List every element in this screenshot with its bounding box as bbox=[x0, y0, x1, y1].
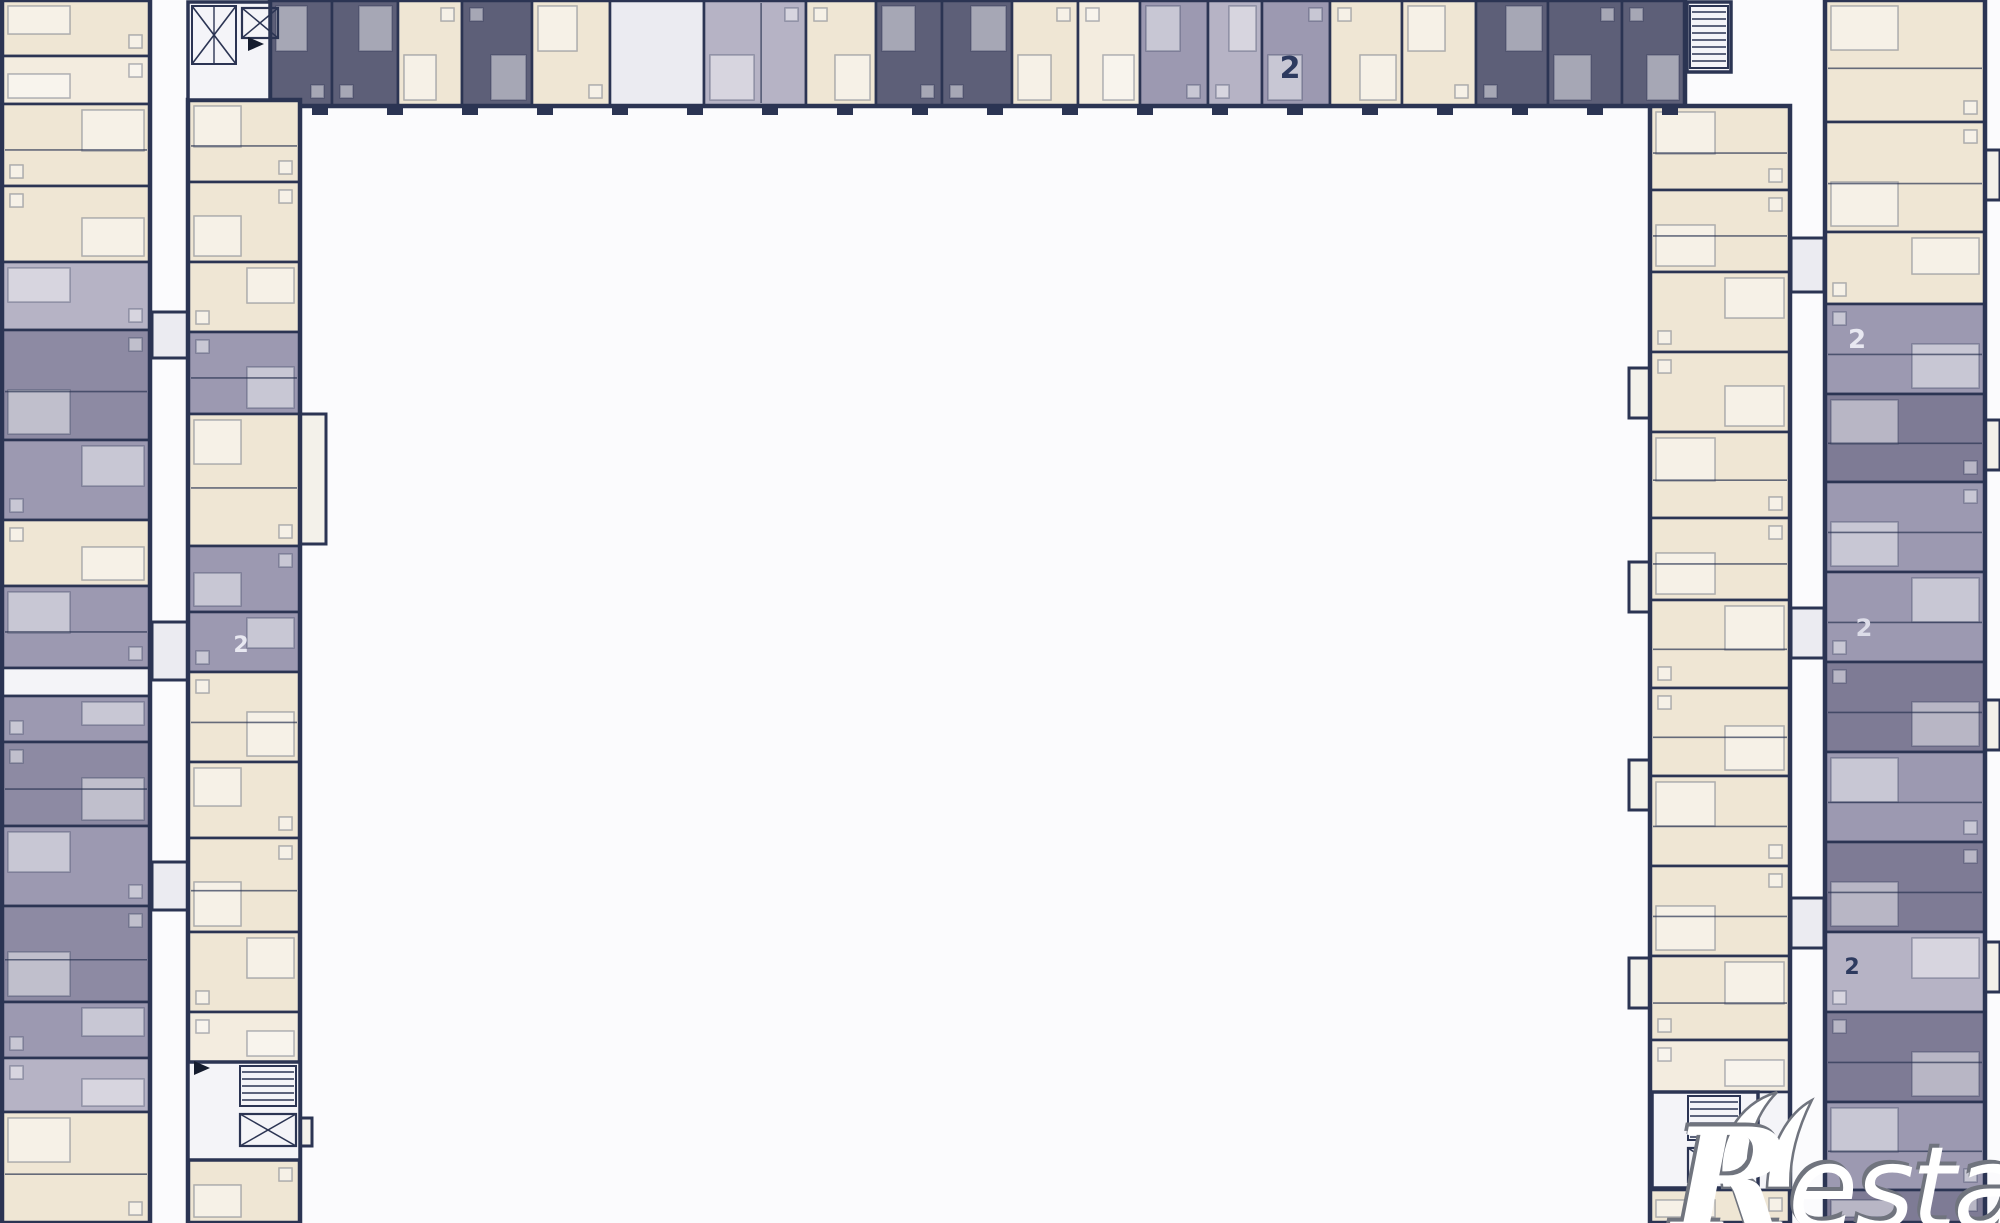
furniture bbox=[1216, 85, 1229, 98]
furniture bbox=[1912, 702, 1979, 746]
furniture bbox=[196, 991, 209, 1004]
furniture bbox=[279, 846, 292, 859]
furniture bbox=[1229, 6, 1256, 51]
furniture bbox=[10, 721, 23, 734]
furniture bbox=[129, 1202, 142, 1215]
furniture bbox=[247, 712, 294, 756]
furniture bbox=[1658, 1019, 1671, 1032]
furniture bbox=[194, 420, 241, 464]
furniture bbox=[1656, 225, 1715, 266]
furniture bbox=[196, 651, 209, 664]
furniture bbox=[82, 446, 144, 486]
furniture bbox=[814, 8, 827, 21]
furniture bbox=[1725, 1060, 1784, 1086]
furniture bbox=[247, 1031, 294, 1056]
furniture bbox=[10, 165, 23, 178]
furniture bbox=[835, 55, 870, 100]
furniture bbox=[1103, 55, 1134, 100]
floor-plan: 22222 bbox=[0, 0, 2000, 1223]
room-number-label: 2 bbox=[233, 633, 248, 658]
furniture bbox=[247, 268, 294, 303]
furniture bbox=[1506, 6, 1542, 51]
furniture bbox=[1455, 85, 1468, 98]
furniture bbox=[1833, 1020, 1846, 1033]
facade-tick bbox=[1662, 104, 1678, 115]
furniture bbox=[1187, 85, 1200, 98]
furniture bbox=[8, 268, 70, 302]
furniture bbox=[129, 647, 142, 660]
furniture bbox=[1725, 726, 1784, 770]
furniture bbox=[279, 161, 292, 174]
facade-tick bbox=[987, 104, 1003, 115]
furniture bbox=[1658, 1048, 1671, 1061]
furniture bbox=[8, 832, 70, 872]
furniture bbox=[710, 55, 754, 100]
balcony bbox=[1629, 368, 1651, 418]
furniture bbox=[1656, 112, 1715, 154]
furniture bbox=[1769, 198, 1782, 211]
furniture bbox=[921, 85, 934, 98]
furniture bbox=[82, 218, 144, 256]
vestibule bbox=[1791, 238, 1824, 292]
room-number-label: 2 bbox=[1844, 955, 1859, 980]
balcony bbox=[300, 414, 326, 544]
furniture bbox=[1964, 1169, 1977, 1182]
room bbox=[2, 668, 150, 696]
furniture bbox=[1769, 1198, 1782, 1211]
furniture bbox=[196, 1020, 209, 1033]
furniture bbox=[1912, 578, 1979, 622]
facade-tick bbox=[1437, 104, 1453, 115]
furniture bbox=[359, 6, 392, 51]
furniture bbox=[82, 1008, 144, 1036]
furniture bbox=[589, 85, 602, 98]
furniture bbox=[194, 1185, 241, 1217]
furniture bbox=[1833, 283, 1846, 296]
furniture bbox=[470, 8, 483, 21]
furniture bbox=[194, 768, 241, 806]
furniture bbox=[247, 367, 294, 408]
furniture bbox=[129, 914, 142, 927]
furniture bbox=[1912, 1052, 1979, 1096]
balcony bbox=[1629, 958, 1651, 1008]
furniture bbox=[196, 340, 209, 353]
furniture bbox=[1057, 8, 1070, 21]
furniture bbox=[279, 525, 292, 538]
furniture bbox=[10, 1066, 23, 1079]
furniture bbox=[1658, 696, 1671, 709]
furniture bbox=[1309, 8, 1322, 21]
furniture bbox=[950, 85, 963, 98]
furniture bbox=[10, 750, 23, 763]
furniture bbox=[311, 85, 324, 98]
furniture bbox=[785, 8, 798, 21]
furniture bbox=[82, 702, 144, 725]
facade-tick bbox=[1512, 104, 1528, 115]
furniture bbox=[1408, 6, 1445, 51]
furniture bbox=[340, 85, 353, 98]
furniture bbox=[10, 528, 23, 541]
facade-tick bbox=[612, 104, 628, 115]
furniture bbox=[129, 885, 142, 898]
furniture bbox=[1725, 386, 1784, 426]
furniture bbox=[1338, 8, 1351, 21]
furniture bbox=[194, 216, 241, 256]
furniture bbox=[1146, 6, 1180, 51]
furniture bbox=[279, 190, 292, 203]
vestibule bbox=[1791, 898, 1824, 948]
furniture bbox=[1964, 490, 1977, 503]
furniture bbox=[1964, 101, 1977, 114]
furniture bbox=[1831, 758, 1898, 802]
furniture bbox=[129, 309, 142, 322]
facade-tick bbox=[462, 104, 478, 115]
furniture bbox=[1833, 312, 1846, 325]
furniture bbox=[276, 6, 307, 51]
furniture bbox=[491, 55, 526, 100]
furniture bbox=[441, 8, 454, 21]
furniture bbox=[129, 64, 142, 77]
furniture bbox=[1769, 874, 1782, 887]
floor-plan-page: 22222 R estate bbox=[0, 0, 2000, 1223]
furniture bbox=[1656, 1200, 1715, 1217]
furniture bbox=[1554, 55, 1591, 100]
furniture bbox=[8, 1118, 70, 1162]
furniture bbox=[1018, 55, 1051, 100]
vestibule bbox=[152, 862, 188, 910]
furniture bbox=[1964, 461, 1977, 474]
furniture bbox=[1831, 882, 1898, 926]
furniture bbox=[1769, 845, 1782, 858]
furniture bbox=[1912, 938, 1979, 978]
furniture bbox=[1833, 670, 1846, 683]
furniture bbox=[1086, 8, 1099, 21]
furniture bbox=[1831, 400, 1898, 444]
furniture bbox=[1833, 641, 1846, 654]
facade-tick bbox=[387, 104, 403, 115]
facade-tick bbox=[1062, 104, 1078, 115]
furniture bbox=[404, 55, 436, 100]
furniture bbox=[82, 110, 144, 151]
furniture bbox=[10, 499, 23, 512]
facade-tick bbox=[1137, 104, 1153, 115]
furniture bbox=[1831, 6, 1898, 50]
furniture bbox=[82, 1079, 144, 1106]
furniture bbox=[1831, 182, 1898, 226]
furniture bbox=[8, 592, 70, 633]
furniture bbox=[1964, 850, 1977, 863]
furniture bbox=[1601, 8, 1614, 21]
furniture bbox=[1769, 169, 1782, 182]
room-number-label: 2 bbox=[1280, 51, 1301, 86]
facade-tick bbox=[912, 104, 928, 115]
furniture bbox=[279, 554, 292, 567]
furniture bbox=[247, 938, 294, 978]
furniture bbox=[538, 6, 577, 51]
furniture bbox=[1964, 130, 1977, 143]
furniture bbox=[1912, 238, 1979, 274]
furniture bbox=[1833, 991, 1846, 1004]
furniture bbox=[1630, 8, 1643, 21]
vestibule bbox=[152, 312, 188, 358]
facade-tick bbox=[1212, 104, 1228, 115]
furniture bbox=[196, 311, 209, 324]
facade-tick bbox=[837, 104, 853, 115]
furniture bbox=[1769, 497, 1782, 510]
furniture bbox=[1725, 606, 1784, 650]
facade-tick bbox=[312, 104, 328, 115]
furniture bbox=[10, 194, 23, 207]
furniture bbox=[8, 390, 70, 434]
furniture bbox=[1656, 906, 1715, 950]
vestibule bbox=[152, 622, 188, 680]
furniture bbox=[194, 882, 241, 926]
furniture bbox=[8, 74, 70, 98]
facade-tick bbox=[762, 104, 778, 115]
furniture bbox=[194, 106, 241, 147]
furniture bbox=[1658, 360, 1671, 373]
furniture bbox=[1656, 782, 1715, 826]
furniture bbox=[82, 547, 144, 580]
furniture bbox=[971, 6, 1006, 51]
facade-tick bbox=[537, 104, 553, 115]
furniture bbox=[10, 1037, 23, 1050]
furniture bbox=[1484, 85, 1497, 98]
furniture bbox=[1769, 526, 1782, 539]
balcony bbox=[1629, 562, 1651, 612]
room bbox=[610, 0, 704, 106]
furniture bbox=[1964, 821, 1977, 834]
facade-tick bbox=[1587, 104, 1603, 115]
furniture bbox=[82, 778, 144, 820]
furniture bbox=[882, 6, 915, 51]
furniture bbox=[8, 952, 70, 996]
furniture bbox=[1912, 344, 1979, 388]
furniture bbox=[1831, 1108, 1898, 1152]
furniture bbox=[1831, 522, 1898, 566]
furniture bbox=[1725, 962, 1784, 1004]
furniture bbox=[1725, 278, 1784, 318]
furniture bbox=[1658, 331, 1671, 344]
room-number-label: 2 bbox=[1848, 325, 1866, 355]
furniture bbox=[196, 680, 209, 693]
furniture bbox=[279, 817, 292, 830]
furniture bbox=[129, 338, 142, 351]
furniture bbox=[194, 573, 241, 606]
furniture bbox=[129, 35, 142, 48]
furniture bbox=[1964, 1198, 1977, 1211]
furniture bbox=[279, 1168, 292, 1181]
furniture bbox=[1658, 667, 1671, 680]
furniture bbox=[1831, 1200, 1898, 1217]
furniture bbox=[247, 618, 294, 648]
furniture bbox=[8, 6, 70, 34]
furniture bbox=[1360, 55, 1396, 100]
facade-tick bbox=[1362, 104, 1378, 115]
furniture bbox=[1656, 438, 1715, 481]
furniture bbox=[1656, 553, 1715, 594]
room-number-label: 2 bbox=[1856, 614, 1873, 642]
vestibule bbox=[1791, 608, 1824, 658]
balcony bbox=[1629, 760, 1651, 810]
facade-tick bbox=[1287, 104, 1303, 115]
furniture bbox=[1647, 55, 1679, 100]
facade-tick bbox=[687, 104, 703, 115]
